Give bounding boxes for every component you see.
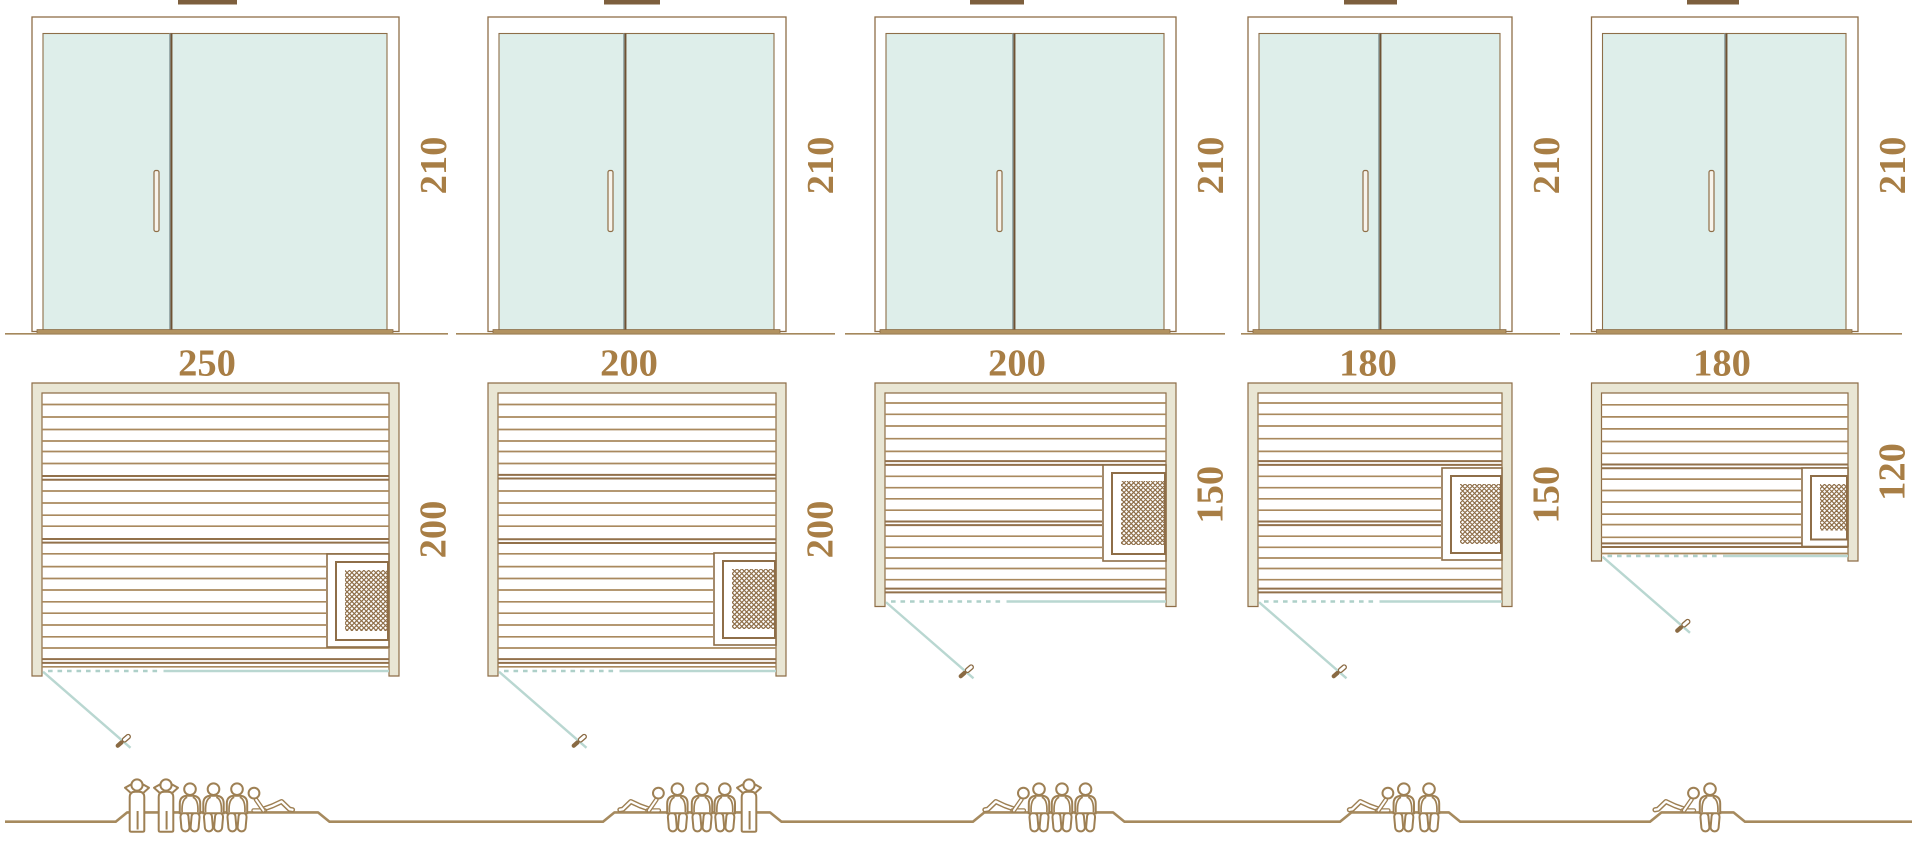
svg-text:210: 210 — [1526, 137, 1568, 195]
svg-text:200: 200 — [413, 501, 455, 559]
svg-text:150: 150 — [1190, 466, 1232, 524]
svg-text:210: 210 — [1872, 137, 1914, 195]
svg-text:210: 210 — [413, 137, 455, 195]
svg-text:200: 200 — [988, 343, 1046, 385]
svg-text:250: 250 — [178, 343, 236, 385]
svg-text:210: 210 — [800, 137, 842, 195]
svg-text:180: 180 — [1339, 343, 1397, 385]
svg-text:180: 180 — [1693, 343, 1751, 385]
svg-text:200: 200 — [800, 501, 842, 559]
svg-text:200: 200 — [600, 343, 658, 385]
svg-text:120: 120 — [1872, 443, 1914, 501]
svg-text:150: 150 — [1526, 466, 1568, 524]
svg-text:210: 210 — [1190, 137, 1232, 195]
